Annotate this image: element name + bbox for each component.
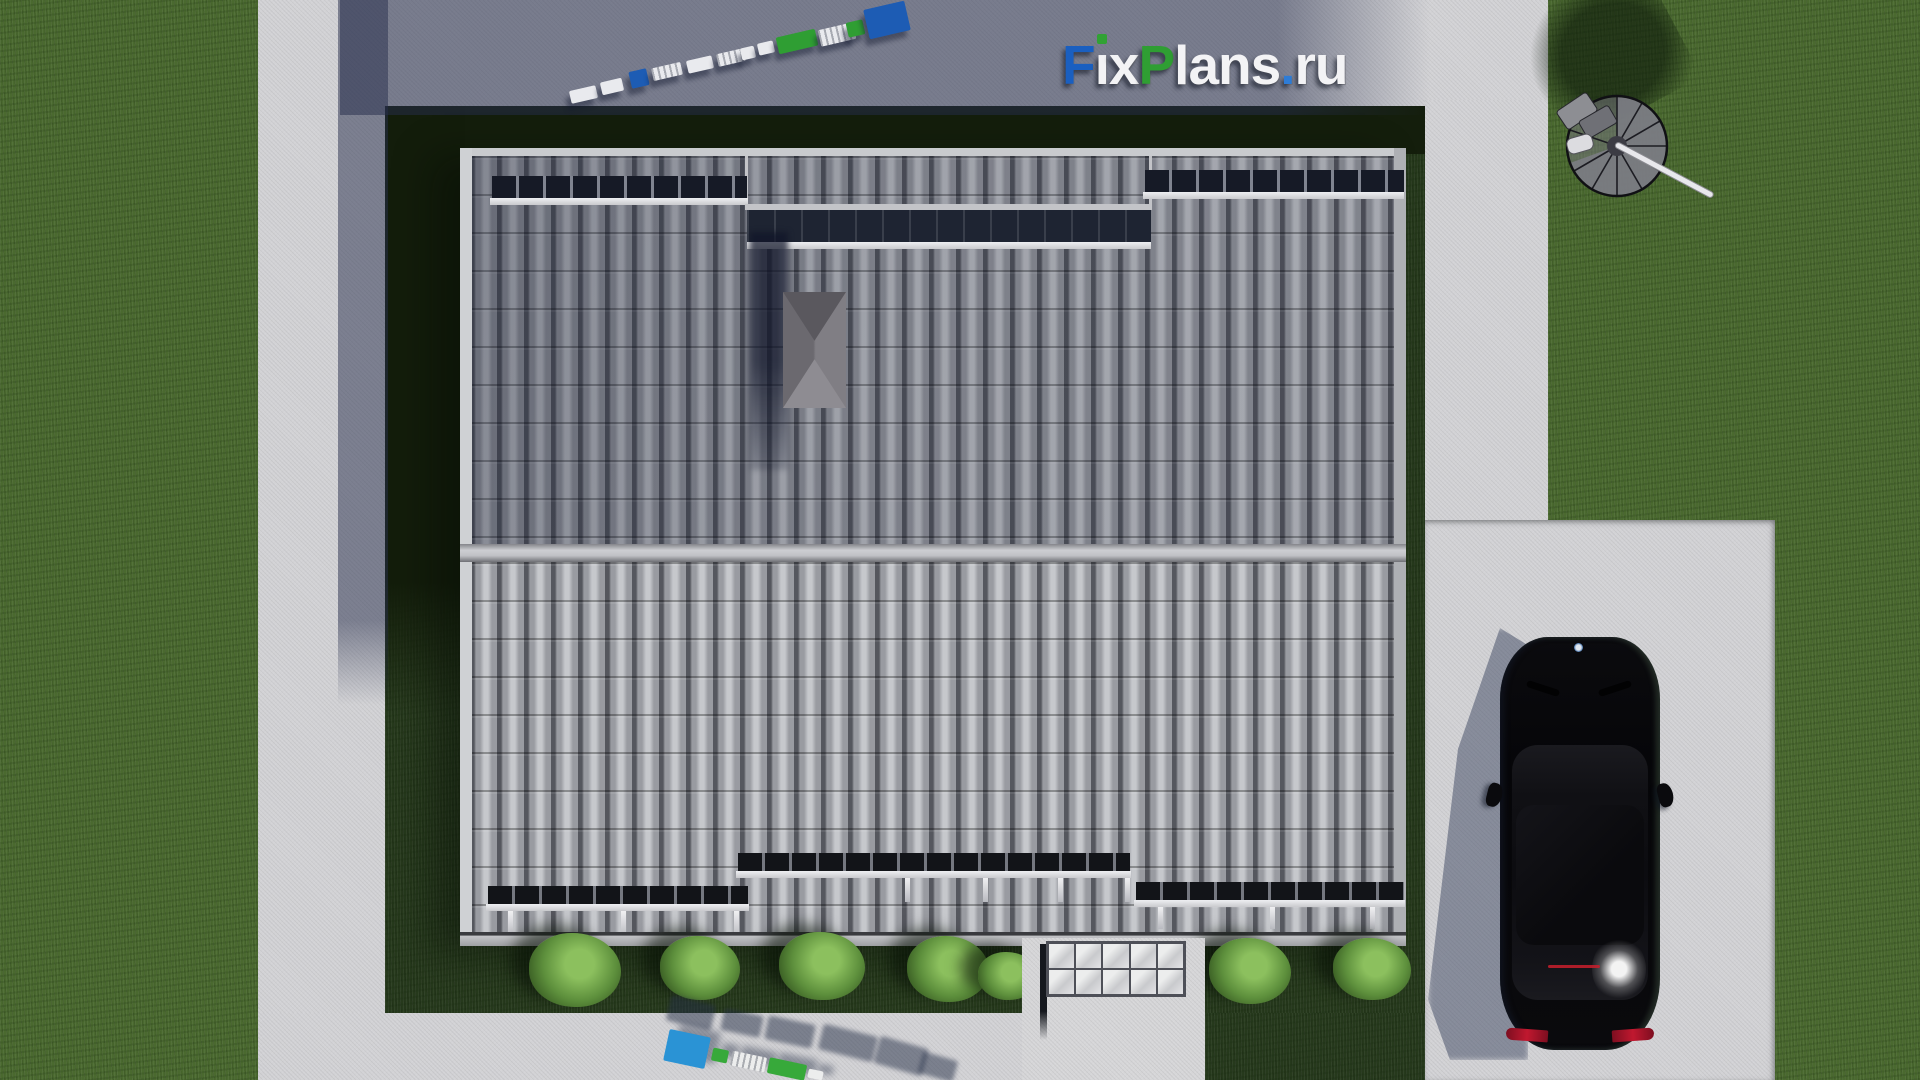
gutter-strap: [905, 878, 910, 902]
hood-vent: [1598, 680, 1632, 697]
canopy-panel: [1157, 943, 1184, 969]
house-shadow-on-yard-left: [385, 106, 465, 716]
gutter-strap: [1058, 878, 1063, 902]
logo-letter: ru: [1295, 33, 1348, 97]
logo-letter: P: [1138, 33, 1174, 97]
entrance-canopy-grid: [1046, 941, 1186, 997]
logo-i-dot: [1097, 34, 1107, 44]
canopy-panel: [1130, 969, 1157, 995]
gutter-strap: [1370, 907, 1375, 929]
snow-guard-rail: [747, 242, 1151, 249]
logo-letter: ı: [1095, 33, 1109, 97]
house-shadow-on-left-path: [338, 0, 388, 705]
inner-yard-grass-corner: [1205, 1013, 1425, 1080]
canopy-panel: [1130, 943, 1157, 969]
watermark-logo: FıxPlans.ru: [1062, 33, 1422, 93]
logo-letter: F: [1062, 33, 1095, 97]
roof-ridge: [460, 544, 1406, 562]
snow-guard-rail: [736, 871, 1131, 878]
car-emblem-icon: [1574, 643, 1583, 652]
roof-eave: [460, 932, 1406, 946]
canopy-panel: [1102, 969, 1129, 995]
canopy-panel: [1048, 943, 1075, 969]
canopy-panel: [1157, 969, 1184, 995]
roof-lower-slope: [472, 562, 1394, 934]
snow-guard-rail: [490, 198, 748, 205]
chimney: [783, 292, 846, 408]
canopy-panel: [1048, 969, 1075, 995]
aerial-render-scene: FıxPlans.ru: [0, 0, 1920, 1080]
right-path: [1425, 100, 1548, 525]
spiral-staircase: [1545, 78, 1755, 228]
snow-guard-rail: [1134, 900, 1405, 907]
logo-letter: x: [1109, 33, 1139, 97]
house-roof: [460, 148, 1406, 946]
dormer-recess: [747, 210, 1151, 242]
trunk-highlight: [1592, 937, 1646, 1001]
canopy-panel: [1075, 943, 1102, 969]
snow-guard-rail: [486, 904, 749, 911]
snow-guard-band: [738, 853, 1130, 871]
car: [1500, 637, 1660, 1050]
gutter-strap: [1125, 878, 1130, 902]
gutter-strap: [1158, 907, 1163, 929]
car-roof: [1516, 805, 1644, 945]
snow-guard-band: [488, 886, 748, 904]
roof-upper-slope: [472, 156, 1394, 546]
canopy-panel: [1075, 969, 1102, 995]
gutter-strap: [1270, 907, 1275, 929]
hood-vent: [1526, 680, 1560, 697]
snow-guard-rail: [1143, 192, 1404, 199]
logo-letter: lans: [1174, 33, 1280, 97]
brake-light: [1548, 965, 1600, 968]
snow-guard-band: [1145, 170, 1404, 192]
gutter-strap: [983, 878, 988, 902]
snow-guard-band: [492, 176, 747, 198]
snow-guard-band: [1136, 882, 1404, 900]
logo-letter: .: [1280, 33, 1294, 97]
canopy-panel: [1102, 943, 1129, 969]
